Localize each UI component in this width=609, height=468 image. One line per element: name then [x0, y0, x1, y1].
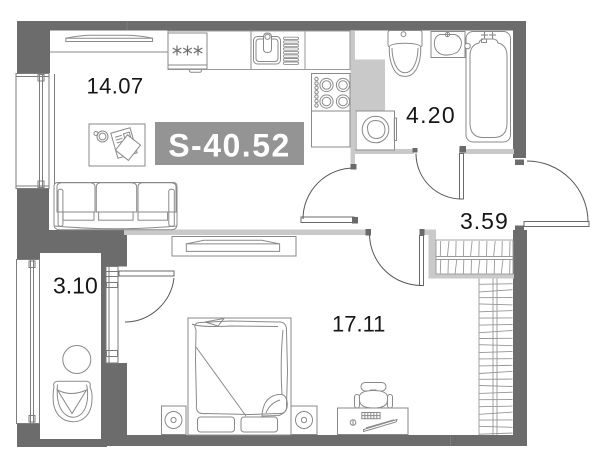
svg-text:3.59: 3.59	[460, 208, 509, 234]
svg-text:17.11: 17.11	[332, 312, 385, 337]
svg-text:S-40.52: S-40.52	[168, 128, 291, 164]
svg-text:4.20: 4.20	[406, 102, 456, 128]
svg-text:14.07: 14.07	[87, 74, 144, 99]
svg-text:3.10: 3.10	[53, 273, 98, 299]
